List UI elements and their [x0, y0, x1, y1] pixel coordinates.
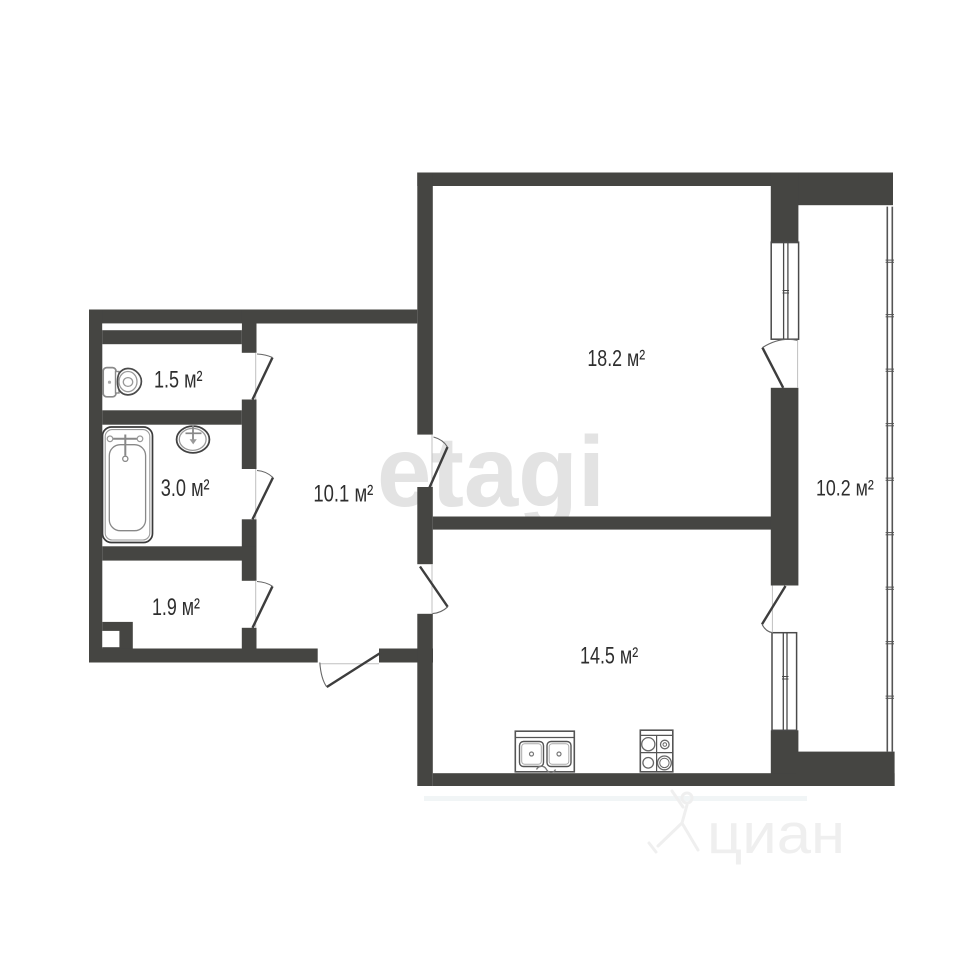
svg-text:1.9 м²: 1.9 м²: [152, 594, 200, 621]
svg-text:3.0 м²: 3.0 м²: [161, 475, 210, 502]
svg-text:циан: циан: [707, 802, 845, 866]
svg-text:10.2 м²: 10.2 м²: [816, 475, 874, 500]
svg-text:14.5 м²: 14.5 м²: [580, 644, 638, 670]
svg-text:etagi: etagi: [377, 416, 605, 528]
svg-text:18.2 м²: 18.2 м²: [587, 345, 645, 371]
svg-text:1.5 м²: 1.5 м²: [154, 367, 203, 394]
svg-text:10.1 м²: 10.1 м²: [313, 480, 373, 507]
